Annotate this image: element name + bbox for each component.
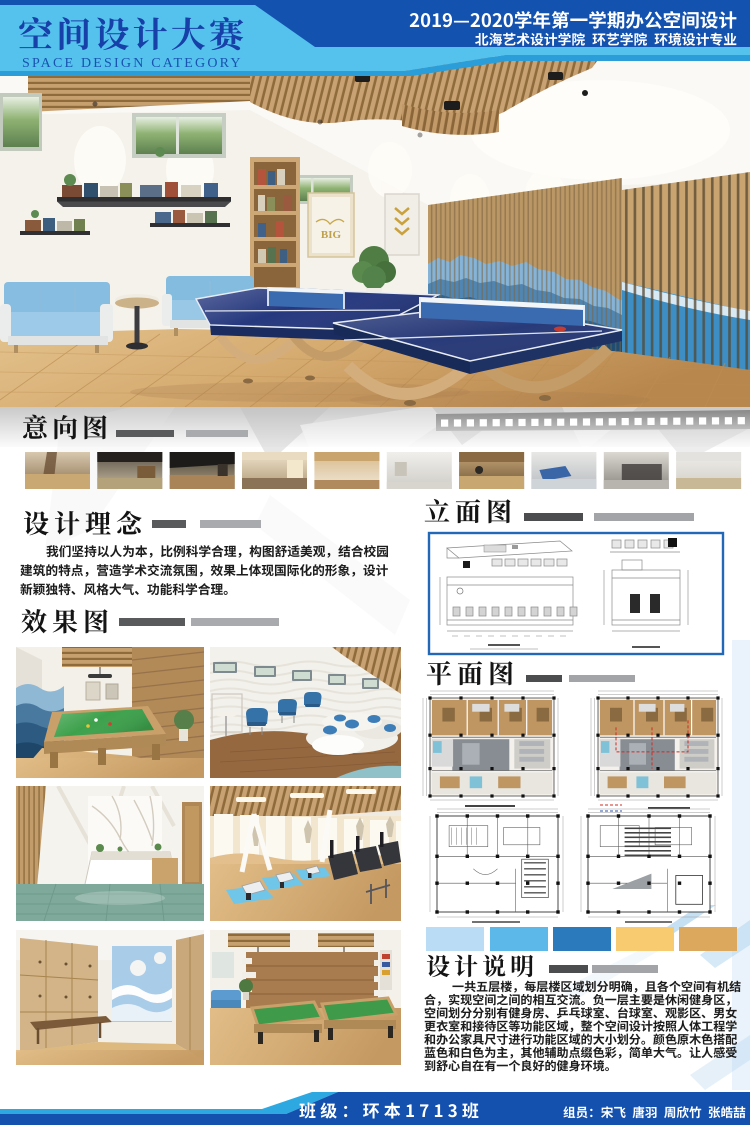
svg-text:BIG: BIG [321, 229, 342, 241]
svg-text:SPACE DESIGN CATEGORY: SPACE DESIGN CATEGORY [22, 56, 243, 71]
